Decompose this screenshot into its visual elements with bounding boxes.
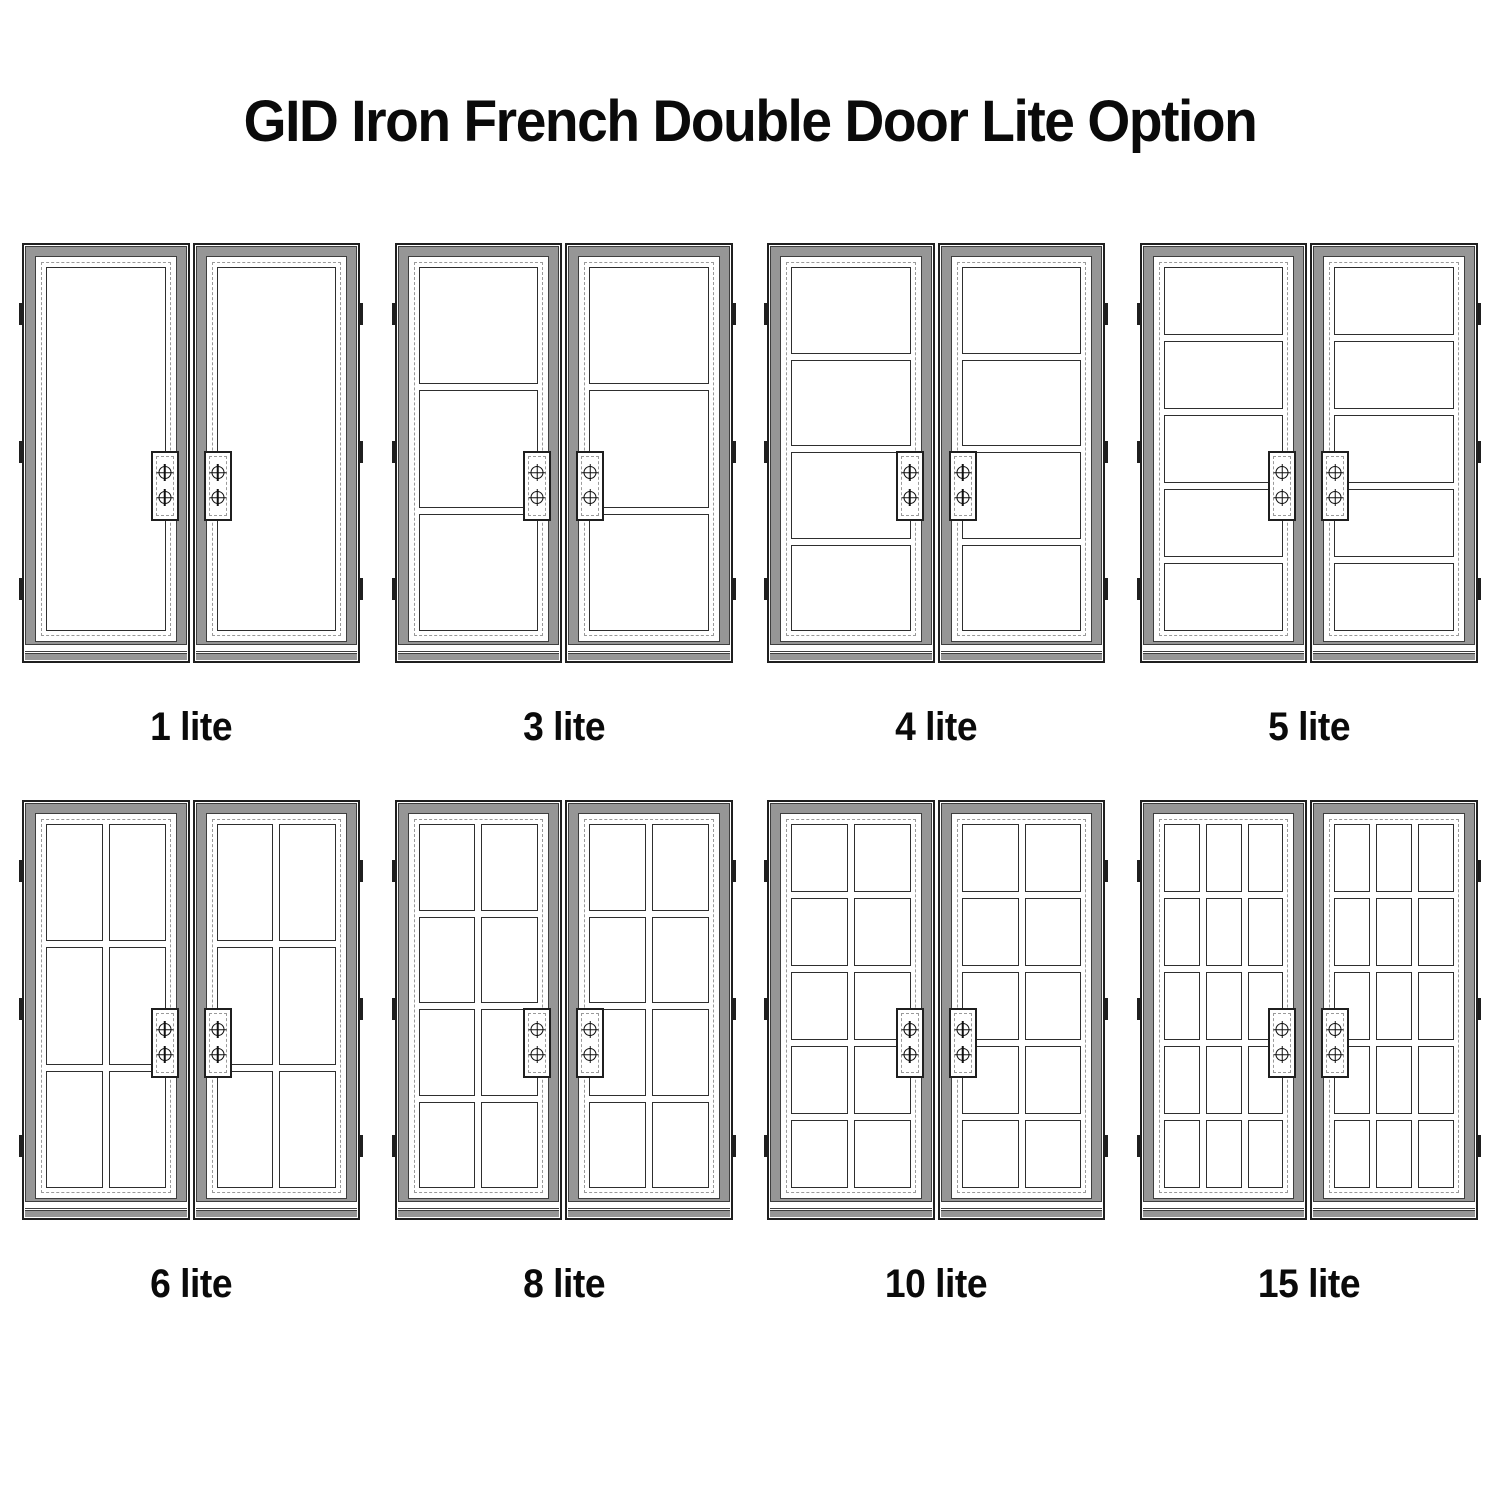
screw-icon: [1329, 1023, 1342, 1036]
hinge-mark: [764, 860, 768, 882]
door-leaf-right: [193, 800, 361, 1220]
screw-icon: [903, 1023, 916, 1036]
doors-row-top: 1 lite3 lite4 lite5 lite: [22, 243, 1478, 750]
double-door-drawing: [395, 243, 733, 663]
door-leaf-left: [767, 800, 935, 1220]
glass-pane: [589, 1102, 646, 1189]
glass-pane: [589, 514, 709, 631]
screw-icon: [1276, 466, 1289, 479]
hinge-mark: [392, 860, 396, 882]
screw-icon: [584, 1048, 597, 1061]
glass-pane: [962, 360, 1082, 447]
glass-pane: [481, 824, 538, 911]
lock-plate: [896, 1008, 924, 1078]
glass-pane: [962, 1120, 1019, 1188]
glass-pane: [1025, 1120, 1082, 1188]
door-sill: [25, 644, 187, 660]
hinge-mark: [764, 441, 768, 463]
glass-area: [414, 819, 544, 1193]
glass-pane: [46, 1071, 103, 1188]
door-sill: [196, 644, 358, 660]
page-title: GID Iron French Double Door Lite Option: [38, 88, 1463, 155]
screw-icon: [1276, 1048, 1289, 1061]
glass-pane: [1206, 1120, 1242, 1188]
door-option-4-lite: 4 lite: [767, 243, 1105, 750]
hinge-mark: [19, 1135, 23, 1157]
glass-pane: [791, 898, 848, 966]
door-leaf-left: [395, 243, 563, 663]
glass-pane: [419, 1009, 476, 1096]
pane-grid: [419, 267, 539, 631]
screw-icon: [956, 1023, 969, 1036]
glass-pane: [1164, 824, 1200, 892]
lock-plate: [151, 451, 179, 521]
hinge-mark: [359, 998, 363, 1020]
glass-pane: [1418, 1046, 1454, 1114]
glass-area: [957, 262, 1087, 636]
screw-icon: [211, 466, 224, 479]
hinge-mark: [732, 998, 736, 1020]
glass-pane: [589, 390, 709, 507]
hinge-mark: [764, 998, 768, 1020]
glass-pane: [1164, 898, 1200, 966]
hinge-mark: [1477, 578, 1481, 600]
lock-plate: [896, 451, 924, 521]
door-option-label: 1 lite: [150, 705, 232, 750]
glass-pane: [1164, 267, 1284, 335]
glass-pane: [1334, 489, 1454, 557]
glass-pane: [791, 972, 848, 1040]
glass-pane: [217, 1071, 274, 1188]
glass-area: [1329, 262, 1459, 636]
door-leaf-right: [1310, 243, 1478, 663]
screw-icon: [1329, 1048, 1342, 1061]
door-sill: [770, 1201, 932, 1217]
door-sill: [1313, 1201, 1475, 1217]
glass-area: [212, 819, 342, 1193]
glass-area: [1159, 262, 1289, 636]
glass-pane: [1206, 972, 1242, 1040]
glass-area: [414, 262, 544, 636]
glass-pane: [1248, 824, 1284, 892]
door-leaf-left: [1140, 800, 1308, 1220]
screw-icon: [956, 466, 969, 479]
hinge-mark: [1104, 303, 1108, 325]
door-leaf-right: [565, 800, 733, 1220]
glass-pane: [1418, 898, 1454, 966]
glass-pane: [419, 514, 539, 631]
door-leaf-left: [22, 800, 190, 1220]
screw-icon: [211, 491, 224, 504]
glass-pane: [217, 267, 337, 631]
glass-pane: [1334, 1120, 1370, 1188]
double-door-drawing: [22, 800, 360, 1220]
hinge-mark: [359, 1135, 363, 1157]
glass-pane: [1334, 415, 1454, 483]
glass-pane: [1376, 824, 1412, 892]
hinge-mark: [732, 441, 736, 463]
glass-pane: [1248, 898, 1284, 966]
screw-icon: [956, 491, 969, 504]
glass-pane: [1164, 1046, 1200, 1114]
door-sill: [398, 644, 560, 660]
hinge-mark: [1477, 1135, 1481, 1157]
door-option-label: 3 lite: [523, 705, 605, 750]
glass-pane: [791, 824, 848, 892]
glass-pane: [279, 1071, 336, 1188]
door-leaf-left: [1140, 243, 1308, 663]
pane-grid: [589, 267, 709, 631]
lock-plate: [1321, 451, 1349, 521]
door-sill: [568, 1201, 730, 1217]
glass-pane: [1206, 898, 1242, 966]
pane-grid: [217, 267, 337, 631]
hinge-mark: [359, 441, 363, 463]
glass-pane: [1164, 341, 1284, 409]
hinge-mark: [732, 860, 736, 882]
glass-pane: [652, 1009, 709, 1096]
hinge-mark: [1477, 303, 1481, 325]
screw-icon: [584, 1023, 597, 1036]
glass-area: [584, 262, 714, 636]
door-option-label: 4 lite: [895, 705, 977, 750]
hinge-mark: [764, 1135, 768, 1157]
glass-pane: [1376, 898, 1412, 966]
screw-icon: [584, 491, 597, 504]
screw-icon: [531, 491, 544, 504]
hinge-mark: [732, 303, 736, 325]
hinge-mark: [764, 303, 768, 325]
door-leaf-right: [938, 243, 1106, 663]
double-door-drawing: [767, 243, 1105, 663]
screw-icon: [903, 1048, 916, 1061]
door-leaf-right: [193, 243, 361, 663]
hinge-mark: [19, 998, 23, 1020]
glass-pane: [1418, 824, 1454, 892]
glass-area: [212, 262, 342, 636]
door-option-15-lite: 15 lite: [1140, 800, 1478, 1307]
screw-icon: [531, 466, 544, 479]
lock-plate: [1268, 1008, 1296, 1078]
screw-icon: [903, 466, 916, 479]
glass-area: [786, 262, 916, 636]
screw-icon: [1329, 491, 1342, 504]
hinge-mark: [1137, 860, 1141, 882]
hinge-mark: [19, 303, 23, 325]
glass-pane: [962, 545, 1082, 632]
door-sill: [1143, 1201, 1305, 1217]
glass-area: [41, 819, 171, 1193]
door-leaf-right: [1310, 800, 1478, 1220]
glass-pane: [1164, 563, 1284, 631]
glass-pane: [46, 824, 103, 941]
glass-pane: [791, 545, 911, 632]
pane-grid: [1164, 824, 1284, 1188]
glass-pane: [279, 824, 336, 941]
hinge-mark: [392, 998, 396, 1020]
lock-plate: [204, 1008, 232, 1078]
pane-grid: [791, 824, 911, 1188]
door-sill: [398, 1201, 560, 1217]
door-sill: [568, 644, 730, 660]
glass-pane: [962, 824, 1019, 892]
glass-pane: [419, 824, 476, 911]
hinge-mark: [1104, 998, 1108, 1020]
pane-grid: [589, 824, 709, 1188]
pane-grid: [217, 824, 337, 1188]
double-door-drawing: [1140, 800, 1478, 1220]
glass-pane: [589, 917, 646, 1004]
glass-pane: [109, 1071, 166, 1188]
door-leaf-right: [938, 800, 1106, 1220]
glass-pane: [46, 267, 166, 631]
door-option-8-lite: 8 lite: [395, 800, 733, 1307]
door-option-label: 15 lite: [1258, 1262, 1360, 1307]
screw-icon: [158, 1048, 171, 1061]
lock-plate: [576, 451, 604, 521]
pane-grid: [1164, 267, 1284, 631]
double-door-drawing: [767, 800, 1105, 1220]
door-sill: [1143, 644, 1305, 660]
glass-pane: [1164, 1120, 1200, 1188]
door-option-label: 8 lite: [523, 1262, 605, 1307]
glass-pane: [1206, 824, 1242, 892]
screw-icon: [158, 466, 171, 479]
hinge-mark: [1137, 578, 1141, 600]
glass-pane: [791, 1120, 848, 1188]
double-door-drawing: [22, 243, 360, 663]
door-option-label: 6 lite: [150, 1262, 232, 1307]
screw-icon: [211, 1048, 224, 1061]
door-option-3-lite: 3 lite: [395, 243, 733, 750]
door-option-5-lite: 5 lite: [1140, 243, 1478, 750]
lock-plate: [523, 1008, 551, 1078]
hinge-mark: [1137, 998, 1141, 1020]
glass-pane: [46, 947, 103, 1064]
hinge-mark: [392, 1135, 396, 1157]
glass-pane: [962, 452, 1082, 539]
glass-pane: [652, 1102, 709, 1189]
double-door-drawing: [395, 800, 733, 1220]
hinge-mark: [19, 441, 23, 463]
hinge-mark: [732, 1135, 736, 1157]
screw-icon: [584, 466, 597, 479]
door-option-label: 5 lite: [1268, 705, 1350, 750]
glass-area: [1159, 819, 1289, 1193]
door-option-label: 10 lite: [885, 1262, 987, 1307]
door-leaf-left: [395, 800, 563, 1220]
glass-pane: [419, 390, 539, 507]
door-option-10-lite: 10 lite: [767, 800, 1105, 1307]
glass-pane: [419, 1102, 476, 1189]
screw-icon: [531, 1023, 544, 1036]
glass-pane: [1334, 824, 1370, 892]
glass-pane: [1206, 1046, 1242, 1114]
glass-pane: [854, 898, 911, 966]
glass-pane: [481, 917, 538, 1004]
glass-pane: [1164, 972, 1200, 1040]
hinge-mark: [392, 441, 396, 463]
glass-pane: [962, 898, 1019, 966]
glass-area: [957, 819, 1087, 1193]
lock-plate: [949, 1008, 977, 1078]
glass-pane: [962, 267, 1082, 354]
lock-plate: [204, 451, 232, 521]
hinge-mark: [1104, 860, 1108, 882]
glass-pane: [1334, 563, 1454, 631]
glass-pane: [1376, 972, 1412, 1040]
hinge-mark: [1104, 1135, 1108, 1157]
hinge-mark: [1104, 578, 1108, 600]
pane-grid: [1334, 267, 1454, 631]
pane-grid: [1334, 824, 1454, 1188]
door-sill: [1313, 644, 1475, 660]
hinge-mark: [19, 578, 23, 600]
glass-pane: [791, 267, 911, 354]
screw-icon: [211, 1023, 224, 1036]
double-door-drawing: [1140, 243, 1478, 663]
glass-pane: [652, 917, 709, 1004]
hinge-mark: [1104, 441, 1108, 463]
hinge-mark: [392, 303, 396, 325]
hinge-mark: [359, 860, 363, 882]
lock-plate: [151, 1008, 179, 1078]
hinge-mark: [1477, 998, 1481, 1020]
glass-pane: [854, 824, 911, 892]
glass-pane: [1025, 898, 1082, 966]
glass-pane: [1376, 1046, 1412, 1114]
hinge-mark: [1477, 860, 1481, 882]
hinge-mark: [1477, 441, 1481, 463]
glass-pane: [791, 452, 911, 539]
glass-pane: [279, 947, 336, 1064]
screw-icon: [1329, 466, 1342, 479]
lock-plate: [1268, 451, 1296, 521]
hinge-mark: [764, 578, 768, 600]
glass-pane: [1164, 489, 1284, 557]
glass-pane: [1376, 1120, 1412, 1188]
pane-grid: [962, 267, 1082, 631]
glass-pane: [109, 824, 166, 941]
glass-pane: [1164, 415, 1284, 483]
hinge-mark: [1137, 1135, 1141, 1157]
glass-area: [41, 262, 171, 636]
lock-plate: [576, 1008, 604, 1078]
door-leaf-right: [565, 243, 733, 663]
door-option-6-lite: 6 lite: [22, 800, 360, 1307]
hinge-mark: [359, 303, 363, 325]
glass-pane: [1334, 267, 1454, 335]
hinge-mark: [1137, 441, 1141, 463]
pane-grid: [419, 824, 539, 1188]
door-sill: [941, 1201, 1103, 1217]
lock-plate: [949, 451, 977, 521]
glass-pane: [1334, 341, 1454, 409]
glass-pane: [217, 824, 274, 941]
glass-area: [584, 819, 714, 1193]
glass-pane: [419, 917, 476, 1004]
hinge-mark: [732, 578, 736, 600]
lock-plate: [1321, 1008, 1349, 1078]
screw-icon: [158, 1023, 171, 1036]
glass-pane: [589, 267, 709, 384]
glass-pane: [1418, 972, 1454, 1040]
lite-options-diagram: { "title": "GID Iron French Double Door …: [0, 0, 1500, 1500]
hinge-mark: [359, 578, 363, 600]
pane-grid: [962, 824, 1082, 1188]
glass-pane: [791, 1046, 848, 1114]
glass-pane: [1418, 1120, 1454, 1188]
glass-pane: [1025, 1046, 1082, 1114]
glass-pane: [1334, 898, 1370, 966]
screw-icon: [903, 491, 916, 504]
screw-icon: [531, 1048, 544, 1061]
glass-pane: [1025, 972, 1082, 1040]
screw-icon: [1276, 1023, 1289, 1036]
hinge-mark: [1137, 303, 1141, 325]
glass-pane: [481, 1102, 538, 1189]
glass-pane: [652, 824, 709, 911]
doors-row-bottom: 6 lite8 lite10 lite15 lite: [22, 800, 1478, 1307]
door-sill: [25, 1201, 187, 1217]
door-sill: [196, 1201, 358, 1217]
glass-pane: [589, 824, 646, 911]
glass-area: [1329, 819, 1459, 1193]
lock-plate: [523, 451, 551, 521]
screw-icon: [158, 491, 171, 504]
door-sill: [770, 644, 932, 660]
glass-pane: [791, 360, 911, 447]
glass-pane: [1248, 1120, 1284, 1188]
screw-icon: [1276, 491, 1289, 504]
door-leaf-left: [22, 243, 190, 663]
pane-grid: [791, 267, 911, 631]
screw-icon: [956, 1048, 969, 1061]
door-sill: [941, 644, 1103, 660]
glass-pane: [1025, 824, 1082, 892]
door-leaf-left: [767, 243, 935, 663]
glass-pane: [419, 267, 539, 384]
pane-grid: [46, 824, 166, 1188]
glass-pane: [854, 1120, 911, 1188]
hinge-mark: [19, 860, 23, 882]
glass-area: [786, 819, 916, 1193]
pane-grid: [46, 267, 166, 631]
door-option-1-lite: 1 lite: [22, 243, 360, 750]
hinge-mark: [392, 578, 396, 600]
